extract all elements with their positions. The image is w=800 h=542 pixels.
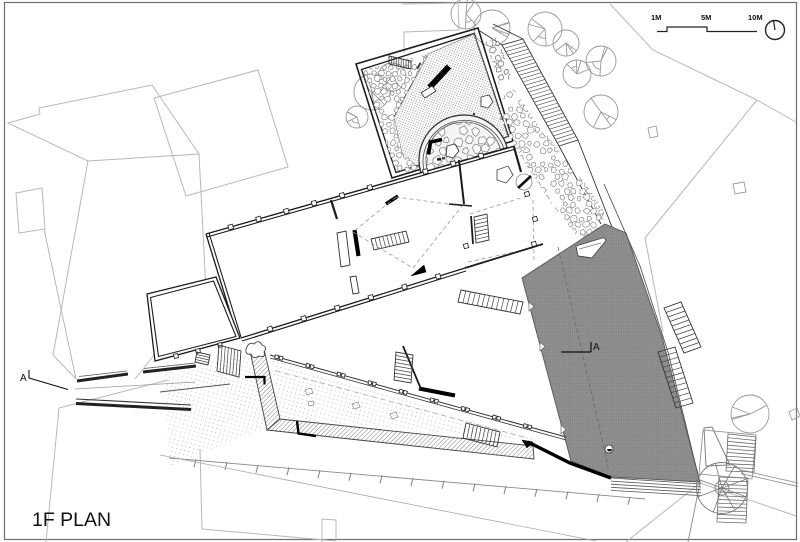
svg-text:1F PLAN: 1F PLAN (32, 509, 111, 531)
svg-text:5M: 5M (701, 13, 711, 22)
svg-text:10M: 10M (748, 13, 763, 22)
svg-text:A: A (20, 373, 27, 384)
svg-text:1M: 1M (651, 13, 661, 22)
svg-text:A: A (593, 342, 600, 353)
